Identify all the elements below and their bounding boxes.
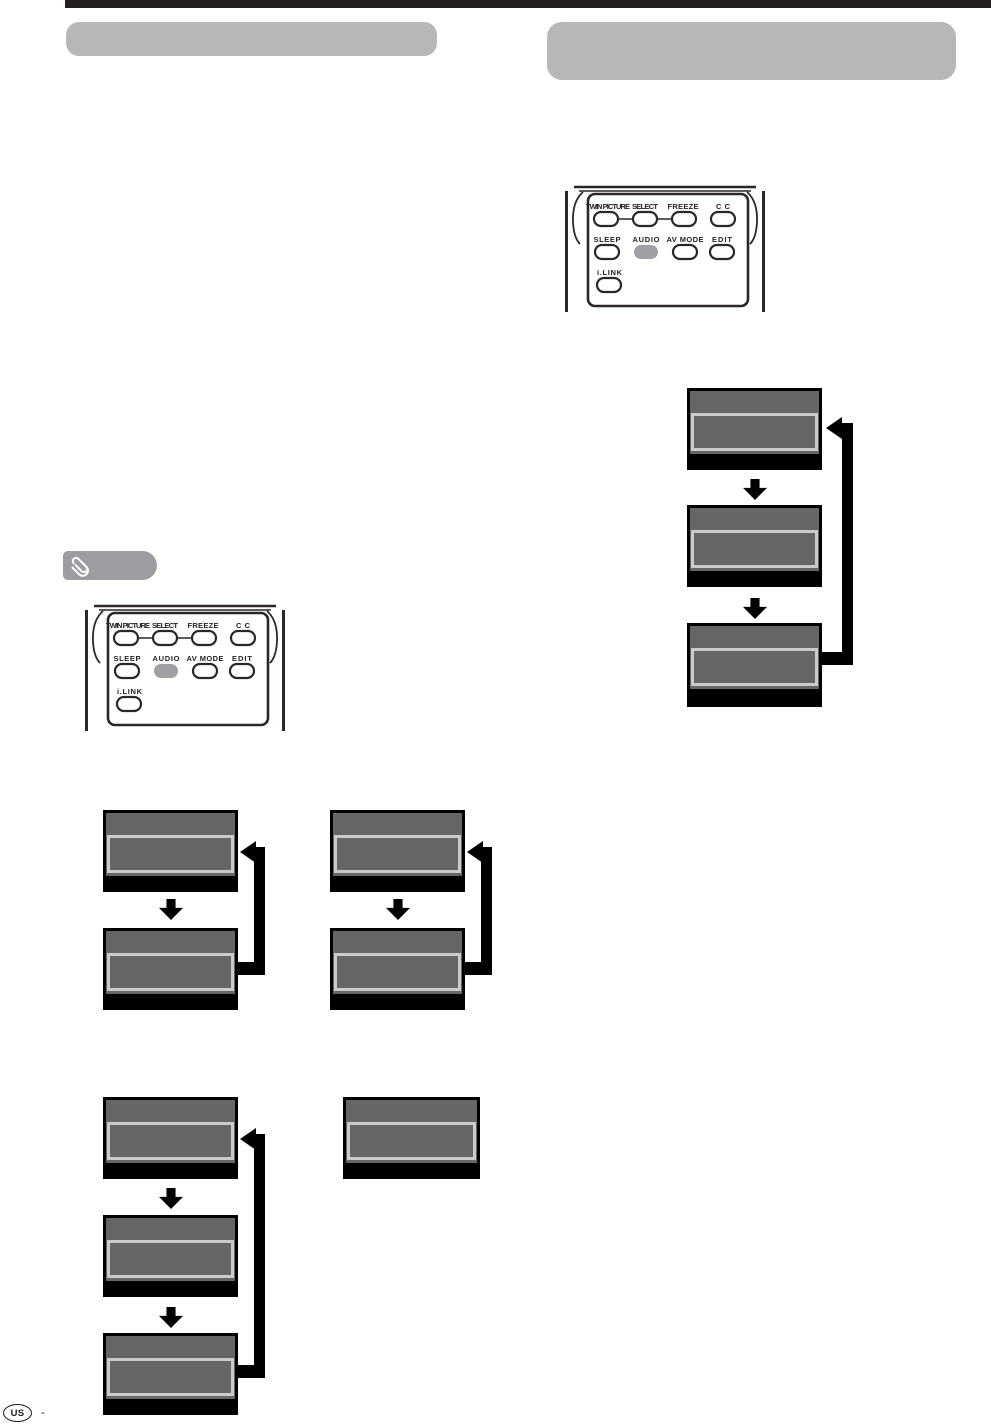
cc-label: CC	[716, 202, 731, 211]
screen-inner-frame	[107, 1358, 234, 1396]
screen-area	[690, 508, 819, 571]
screen-inner-frame	[107, 1122, 234, 1160]
screen-inner-frame	[107, 953, 234, 991]
screen-display-box	[687, 623, 822, 707]
twin-picture-label: TWIN PICTURE	[106, 621, 150, 630]
ilink-label: i.LINK	[597, 268, 623, 277]
screen-display-box	[103, 810, 238, 892]
screen-display-box	[103, 1333, 238, 1415]
av-mode-label: AV MODE	[187, 654, 224, 663]
region-code-badge: US	[3, 1404, 32, 1422]
remote-control-drawing: TWIN PICTURE SELECT FREEZE CC SLEEP AUDI…	[83, 603, 287, 731]
screen-area	[106, 931, 235, 994]
single-screen-display	[343, 1097, 480, 1179]
audio-label: AUDIO	[153, 654, 180, 663]
down-arrow-icon	[159, 1188, 183, 1209]
av-mode-label: AV MODE	[667, 235, 704, 244]
edit-button	[710, 245, 734, 259]
screen-display-box	[103, 1215, 238, 1297]
screen-display-box	[687, 388, 822, 470]
ilink-button	[117, 697, 141, 711]
screen-area	[690, 626, 819, 689]
select-label: SELECT	[152, 621, 178, 630]
ilink-label: i.LINK	[117, 687, 143, 696]
loop-arrowhead-icon	[826, 417, 842, 439]
paperclip-icon	[68, 553, 94, 579]
loop-arrow-line	[842, 423, 853, 665]
loop-arrow-line	[254, 847, 265, 975]
audio-mode-cycle-right	[687, 388, 857, 710]
cc-label: CC	[236, 621, 251, 630]
cc-button	[711, 212, 735, 226]
twin-picture-label: TWIN PICTURE	[586, 202, 630, 211]
av-mode-button	[673, 245, 697, 259]
loop-arrow-line	[481, 847, 492, 975]
freeze-button	[192, 631, 216, 645]
select-label: SELECT	[632, 202, 658, 211]
sleep-label: SLEEP	[114, 654, 141, 663]
page-footer: US -	[3, 1404, 45, 1422]
screen-inner-frame	[107, 1240, 234, 1278]
screen-area	[106, 1336, 235, 1399]
note-tab	[63, 551, 157, 580]
sleep-button	[595, 245, 619, 259]
loop-arrow-foot	[463, 962, 492, 975]
remote-control-figure: TWIN PICTURE SELECT FREEZE CC SLEEP AUDI…	[563, 184, 767, 317]
down-arrow-icon	[159, 899, 183, 920]
screen-area	[346, 1100, 477, 1163]
freeze-button	[672, 212, 696, 226]
screen-inner-frame	[691, 530, 818, 568]
top-rule	[65, 0, 991, 8]
footer-separator: -	[41, 1407, 45, 1419]
edit-button	[230, 664, 254, 678]
freeze-label: FREEZE	[188, 621, 219, 630]
screen-display-box	[330, 810, 465, 892]
remote-left-seam	[93, 611, 103, 663]
screen-area	[333, 931, 462, 994]
remote-control-drawing: TWIN PICTURE SELECT FREEZE CC SLEEP AUDI…	[563, 184, 767, 312]
screen-inner-frame	[691, 413, 818, 451]
screen-inner-frame	[107, 835, 234, 873]
loop-arrow-line	[254, 1134, 265, 1378]
select-button	[153, 631, 177, 645]
screen-display-box	[687, 505, 822, 587]
screen-inner-frame	[334, 953, 461, 991]
cc-button	[231, 631, 255, 645]
audio-mode-cycle-bottom	[103, 1097, 273, 1419]
audio-label: AUDIO	[633, 235, 660, 244]
screen-inner-frame	[691, 648, 818, 686]
ilink-button	[597, 278, 621, 292]
sleep-label: SLEEP	[594, 235, 621, 244]
remote-left-seam	[573, 192, 583, 244]
screen-area	[106, 813, 235, 876]
sleep-button	[115, 664, 139, 678]
remote-control-figure: TWIN PICTURE SELECT FREEZE CC SLEEP AUDI…	[83, 603, 287, 736]
down-arrow-icon	[743, 479, 767, 500]
audio-mode-cycle-mid-left	[103, 810, 273, 1010]
screen-inner-frame	[334, 835, 461, 873]
screen-area	[333, 813, 462, 876]
down-arrow-icon	[743, 598, 767, 619]
screen-display-box	[343, 1097, 480, 1179]
loop-arrow-foot	[236, 962, 265, 975]
audio-button-highlighted	[154, 664, 178, 678]
screen-area	[690, 391, 819, 454]
down-arrow-icon	[159, 1307, 183, 1328]
loop-arrow-foot	[236, 1365, 265, 1378]
audio-mode-cycle-mid-right	[330, 810, 500, 1010]
screen-display-box	[103, 1097, 238, 1179]
screen-inner-frame	[347, 1122, 476, 1160]
section-title-bar-right	[547, 22, 956, 80]
screen-area	[106, 1100, 235, 1163]
screen-area	[106, 1218, 235, 1281]
select-button	[633, 212, 657, 226]
screen-display-box	[103, 928, 238, 1010]
edit-label: EDIT	[232, 654, 252, 663]
screen-display-box	[330, 928, 465, 1010]
section-title-bar-left	[66, 22, 437, 56]
av-mode-button	[193, 664, 217, 678]
audio-button-highlighted	[634, 245, 658, 259]
twin-picture-button	[114, 631, 138, 645]
manual-page: TWIN PICTURE SELECT FREEZE CC SLEEP AUDI…	[0, 0, 991, 1428]
down-arrow-icon	[386, 899, 410, 920]
edit-label: EDIT	[712, 235, 732, 244]
loop-arrow-foot	[822, 652, 853, 665]
twin-picture-button	[594, 212, 618, 226]
freeze-label: FREEZE	[668, 202, 699, 211]
